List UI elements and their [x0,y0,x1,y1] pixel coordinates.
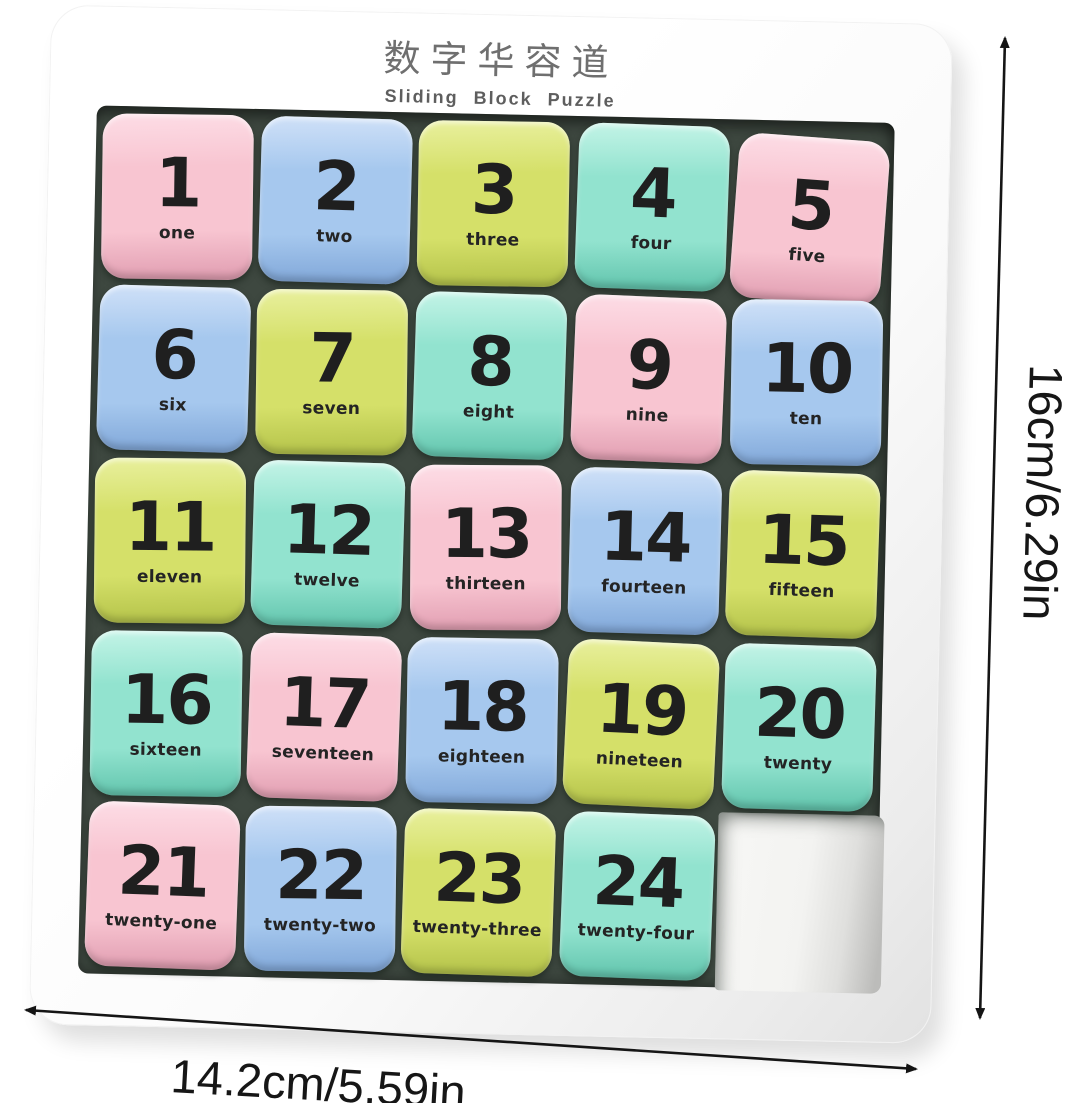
tile-word: seven [302,399,360,420]
tile-number: 7 [309,326,355,395]
puzzle-tile-18: 18eighteen [406,636,560,804]
tile-word: twenty-four [577,920,694,945]
tile-number: 15 [757,507,850,578]
tile-word: twenty-three [413,917,543,941]
tile-number: 2 [312,153,359,222]
tile-number: 19 [594,675,688,747]
tile-number: 24 [591,848,684,920]
puzzle-tile-17: 17seventeen [246,632,403,803]
tile-number: 13 [441,501,532,570]
puzzle-tile-10: 10ten [729,299,883,467]
puzzle-tile-20: 20twenty [721,642,877,812]
puzzle-tile-11: 11eleven [94,458,247,625]
puzzle-tile-5: 5five [728,132,891,308]
puzzle-tile-14: 14fourteen [567,467,723,636]
board-title: 数字华容道 Sliding Block Puzzle [49,20,953,119]
puzzle-tile-1: 1one [101,113,254,280]
tile-number: 9 [625,332,673,402]
tile-number: 22 [275,842,367,911]
tile-grid: 1one2two3three4four5five6six7seven8eight… [78,106,895,991]
tile-word: eighteen [438,746,526,767]
puzzle-tile-19: 19nineteen [561,638,720,810]
tile-number: 23 [433,844,526,915]
puzzle-tile-2: 2two [258,116,414,285]
tile-number: 11 [124,494,215,563]
puzzle-tile-21: 21twenty-one [84,800,241,971]
tile-word: two [316,226,353,247]
puzzle-tile-12: 12twelve [250,460,406,630]
tile-word: sixteen [129,739,202,760]
tile-word: thirteen [446,574,526,594]
puzzle-tile-23: 23twenty-three [401,807,557,977]
tile-word: nineteen [595,748,683,772]
puzzle-tile-15: 15fifteen [724,470,881,640]
puzzle-tile-6: 6six [96,284,252,453]
tile-word: twenty [763,753,832,775]
tile-number: 12 [282,497,375,568]
tile-word: twenty-two [264,915,377,936]
tile-number: 16 [121,666,213,735]
tile-word: eleven [137,567,203,588]
tile-number: 3 [471,157,517,226]
puzzle-tile-22: 22twenty-two [244,805,397,972]
tile-word: seventeen [272,741,375,765]
puzzle-tile-16: 16sixteen [89,630,243,797]
tile-number: 21 [116,837,209,908]
tile-number: 1 [155,150,201,219]
puzzle-tile-13: 13thirteen [410,465,562,631]
puzzle-tile-24: 24twenty-four [558,810,716,981]
height-dimension-label: 16cm/6.29in [1013,364,1066,621]
tile-number: 8 [467,329,514,398]
height-dimension-arrow [980,38,1005,1018]
tile-number: 10 [761,336,853,405]
tile-word: twenty-one [105,910,218,934]
tile-number: 14 [599,504,691,574]
tile-number: 6 [150,322,197,391]
tile-number: 20 [753,679,846,750]
puzzle-tile-7: 7seven [255,289,408,456]
tile-number: 17 [278,669,371,740]
puzzle-board: 数字华容道 Sliding Block Puzzle 1one2two3thre… [29,4,953,1043]
tile-number: 18 [437,673,529,742]
puzzle-tile-9: 9nine [569,294,727,466]
product-photo: 数字华容道 Sliding Block Puzzle 1one2two3thre… [0,0,1066,1103]
tile-word: five [788,245,826,268]
tile-word: six [159,395,187,416]
tile-word: nine [625,405,669,427]
tile-word: fifteen [768,580,835,602]
tile-word: ten [789,409,822,430]
tile-word: eight [463,402,515,424]
tile-word: three [466,230,520,251]
puzzle-tile-8: 8eight [412,291,568,461]
puzzle-tile-4: 4four [574,122,731,292]
width-dimension-label: 14.2cm/5.59in [169,1049,467,1103]
tile-word: fourteen [601,577,687,599]
tile-number: 4 [629,160,677,230]
puzzle-tray: 1one2two3three4four5five6six7seven8eight… [78,106,895,991]
tile-number: 5 [785,172,835,243]
empty-slot [715,812,885,994]
puzzle-tile-3: 3three [417,120,571,288]
tile-word: twelve [294,570,360,592]
tile-word: four [630,233,671,254]
tile-word: one [159,223,195,243]
